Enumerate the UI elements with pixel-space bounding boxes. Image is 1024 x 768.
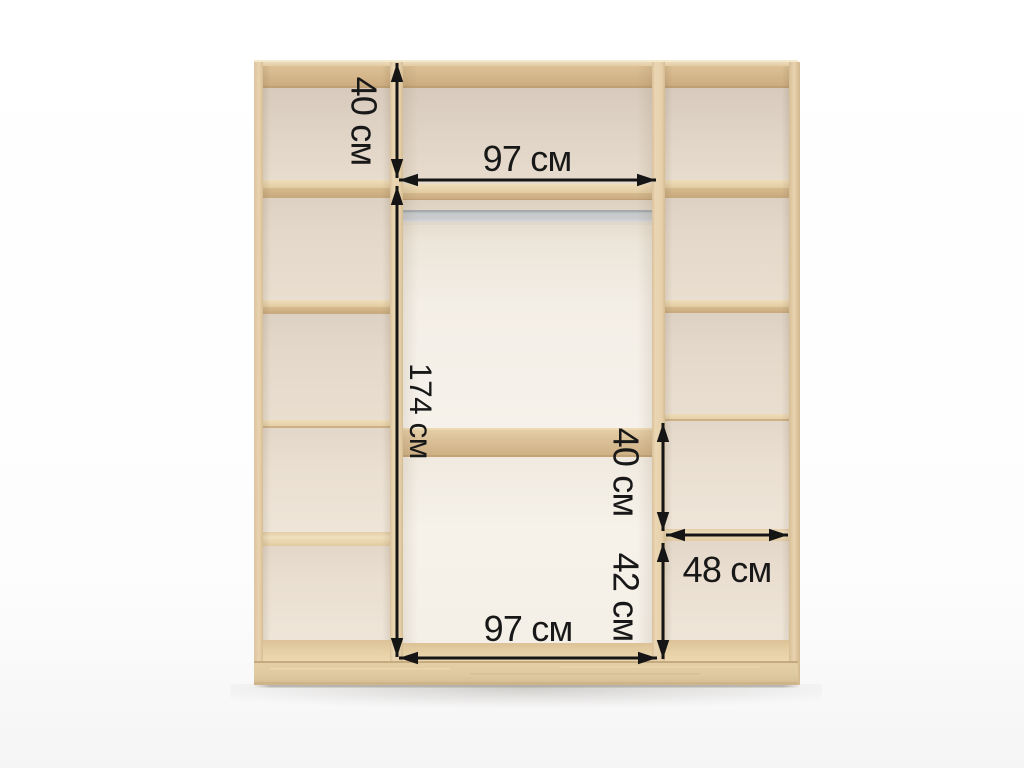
svg-text:42 см: 42 см	[605, 553, 646, 642]
svg-text:48 см: 48 см	[683, 549, 772, 590]
svg-text:40 см: 40 см	[343, 77, 384, 166]
svg-text:40 см: 40 см	[605, 428, 646, 517]
svg-text:174 см: 174 см	[403, 363, 439, 459]
svg-text:97 см: 97 см	[484, 608, 573, 649]
svg-text:97 см: 97 см	[483, 138, 572, 179]
